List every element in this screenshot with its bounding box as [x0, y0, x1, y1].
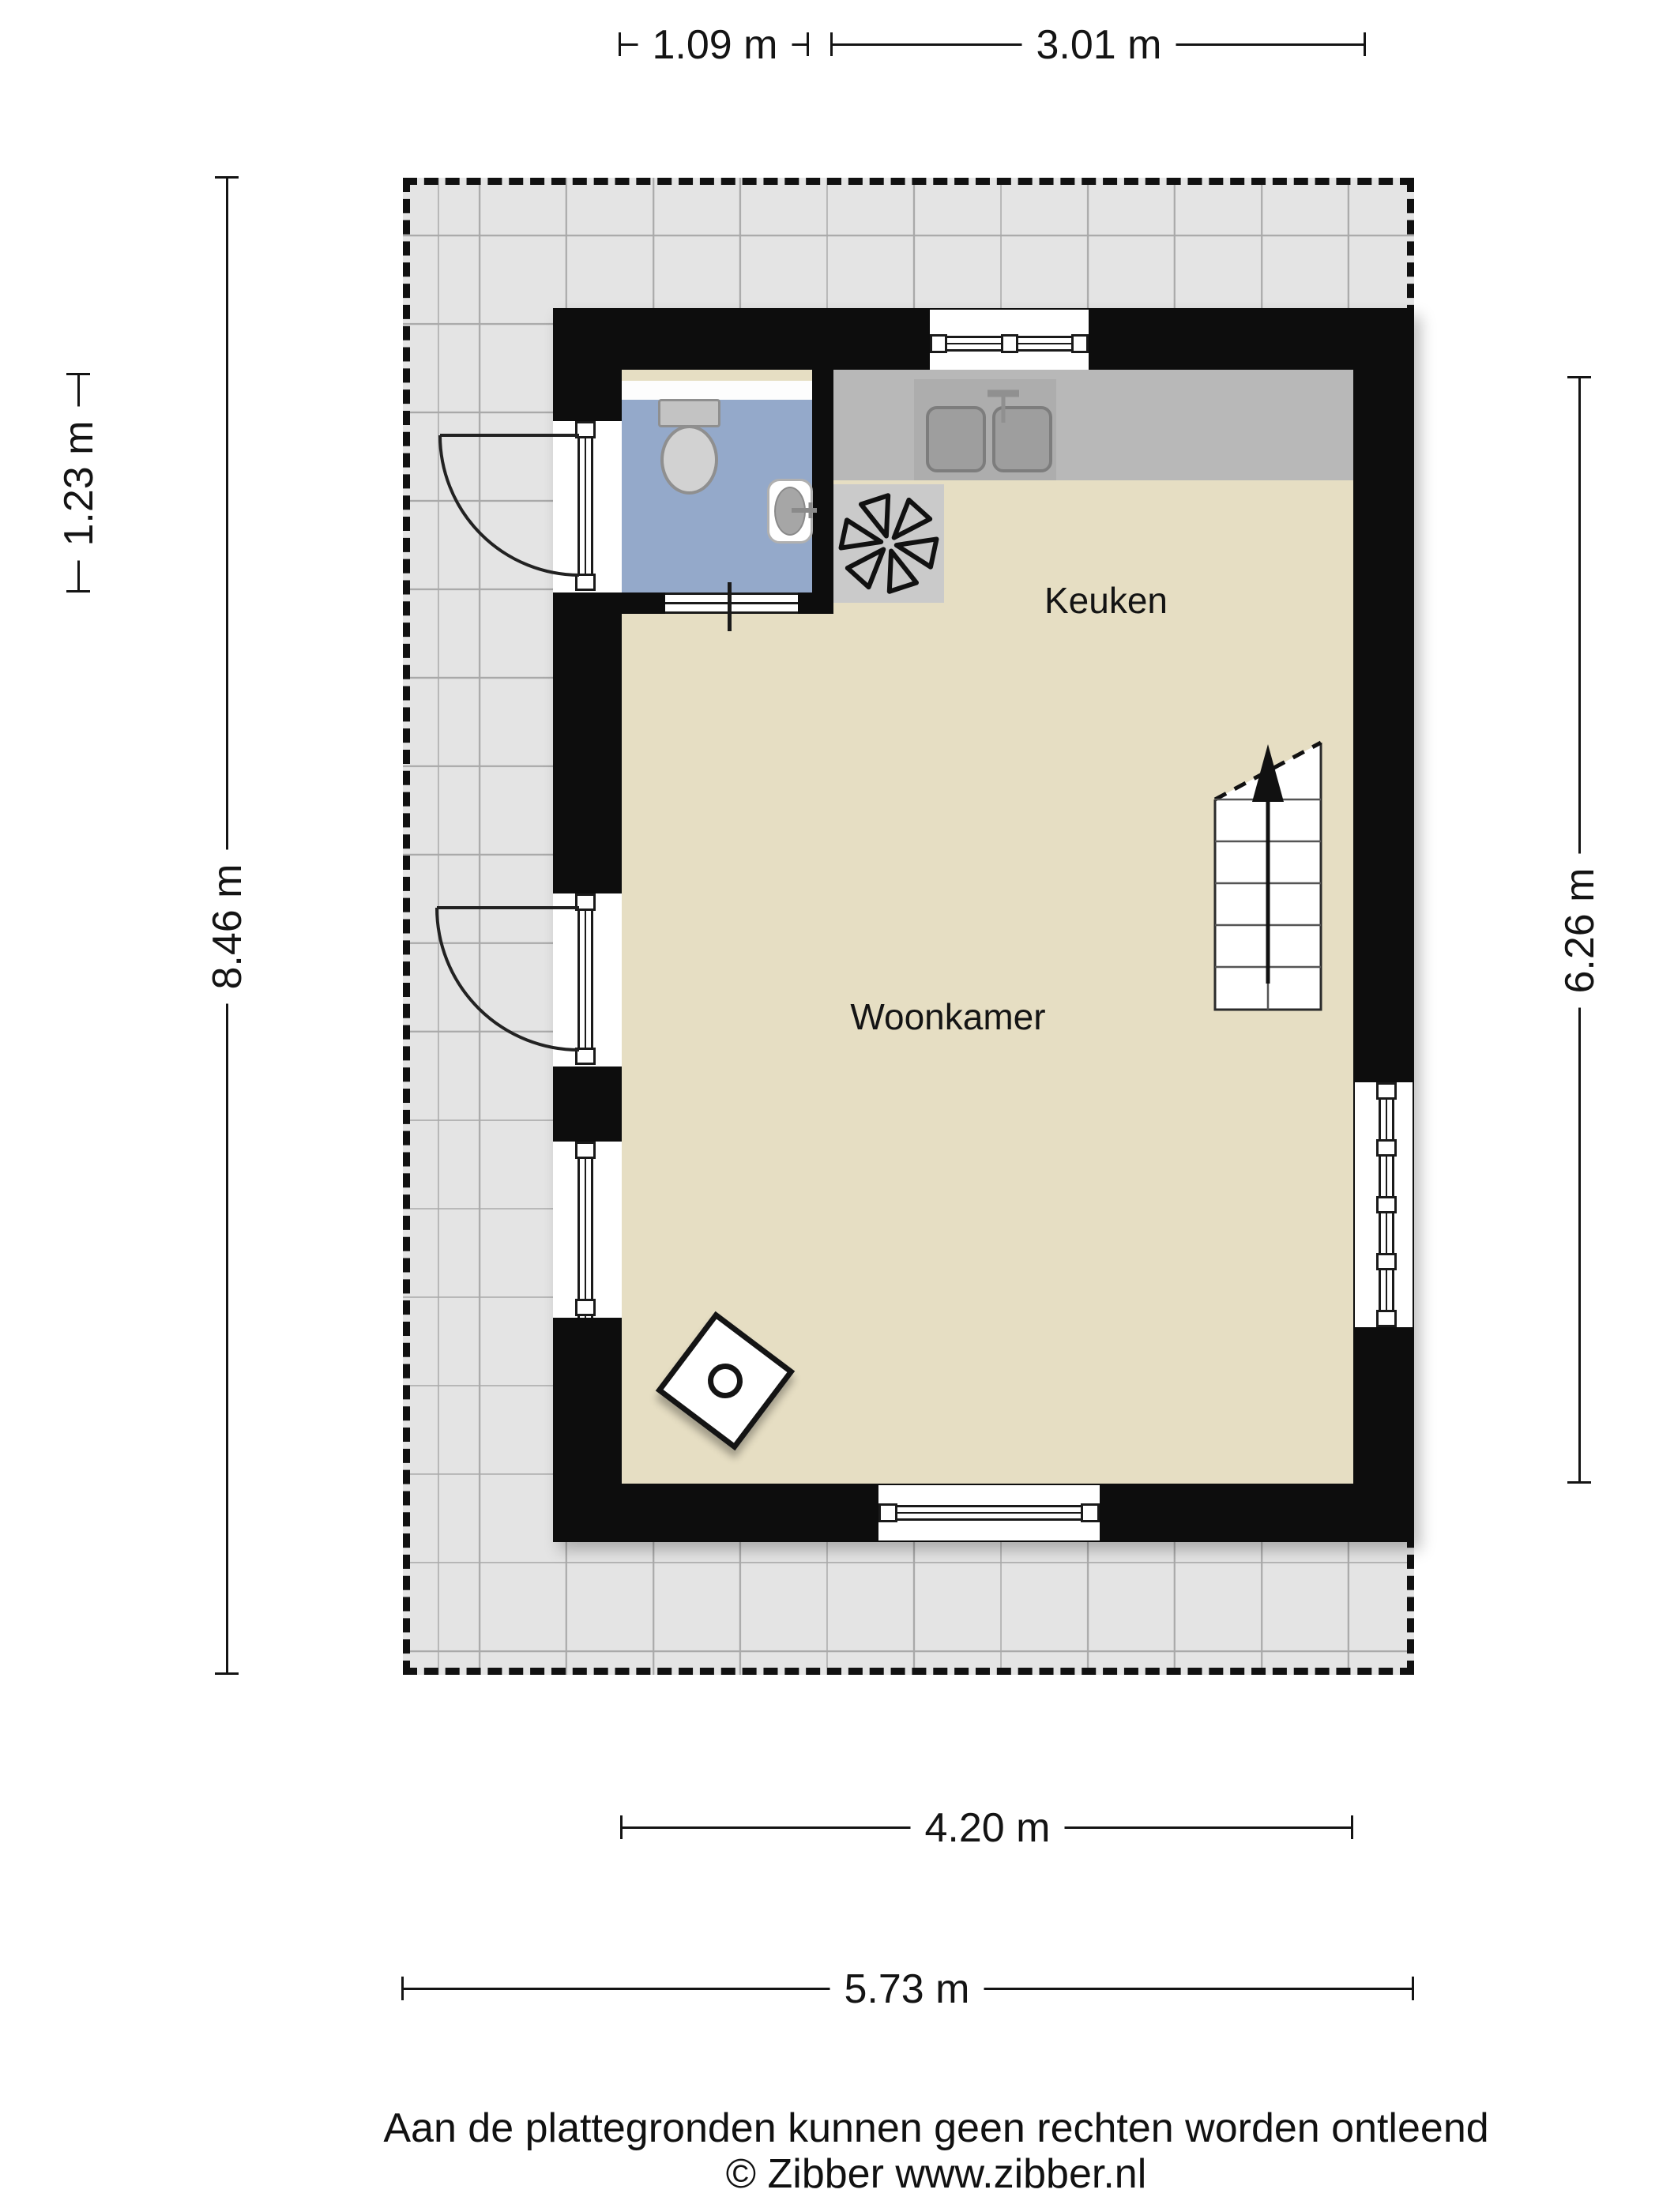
toilet-room-top-wall	[622, 381, 812, 400]
door-cap	[575, 574, 596, 591]
footer-copyright: © Zibber www.zibber.nl	[726, 2150, 1147, 2198]
toilet-icon	[658, 399, 720, 427]
dim-tick	[619, 32, 621, 56]
dim-label-toilet-depth: 1.23 m	[54, 407, 104, 561]
window-cap	[1376, 1310, 1397, 1327]
dim-tick	[1351, 1815, 1353, 1839]
dim-tick	[807, 32, 809, 56]
window-cap	[1376, 1139, 1397, 1157]
south-window-glazing	[878, 1505, 1100, 1521]
toilet-bowl-icon	[660, 425, 718, 495]
dim-tick	[830, 32, 833, 56]
dim-label-total-width: 5.73 m	[830, 1964, 984, 2014]
dim-tick	[1412, 1977, 1414, 2000]
kitchen-sink-icon	[914, 379, 1056, 480]
dim-label-interior-height: 6.26 m	[1555, 854, 1605, 1008]
dim-tick	[66, 373, 90, 375]
door-cap	[575, 421, 596, 438]
west-window-glazing	[577, 1142, 593, 1318]
dim-tick	[1364, 32, 1366, 56]
sink-basin-left	[926, 406, 986, 472]
window-cap	[1081, 1503, 1100, 1522]
dim-tick	[620, 1815, 623, 1839]
front-door-leaf	[577, 424, 593, 590]
window-cap	[1376, 1082, 1397, 1100]
dim-tick	[1567, 1481, 1591, 1484]
room-label-woonkamer: Woonkamer	[850, 995, 1045, 1038]
dim-label-kitchen-width: 3.01 m	[1022, 20, 1176, 70]
dim-tick	[215, 176, 239, 179]
window-cap	[575, 1299, 596, 1316]
dim-tick	[401, 1977, 404, 2000]
window-cap	[575, 1142, 596, 1159]
window-cap	[930, 334, 947, 353]
dim-label-toilet-width: 1.09 m	[638, 20, 792, 70]
footer-disclaimer: Aan de plattegronden kunnen geen rechten…	[383, 2105, 1488, 2152]
hand-basin-bowl	[774, 487, 806, 536]
floorplan-canvas: Keuken Woonkamer 1.09 m 3.01 m 1.23 m 8.…	[0, 0, 1659, 2212]
toilet-room-wall-bottom-right	[798, 592, 812, 614]
ventilation-unit	[833, 484, 944, 603]
toilet-door	[665, 592, 798, 614]
dim-tick	[66, 590, 90, 592]
dim-label-total-height: 8.46 m	[202, 850, 253, 1004]
kitchen-counter	[833, 370, 1353, 480]
window-cap	[1001, 334, 1018, 353]
window-cap	[1376, 1196, 1397, 1213]
sink-basin-right	[992, 406, 1052, 472]
window-cap	[1071, 334, 1089, 353]
stove-flue-circle	[701, 1356, 750, 1405]
dim-tick	[215, 1672, 239, 1675]
toilet-room-wall-bottom-left	[622, 592, 665, 614]
dim-tick	[1567, 376, 1591, 378]
toilet-door-post	[728, 582, 732, 631]
toilet-room-wall-right	[812, 370, 833, 614]
room-label-keuken: Keuken	[1044, 579, 1168, 622]
window-cap	[1376, 1253, 1397, 1270]
door-cap	[575, 893, 596, 911]
dim-label-interior-width: 4.20 m	[911, 1803, 1065, 1853]
window-cap	[878, 1503, 897, 1522]
side-door-leaf	[577, 897, 593, 1064]
door-cap	[575, 1048, 596, 1065]
